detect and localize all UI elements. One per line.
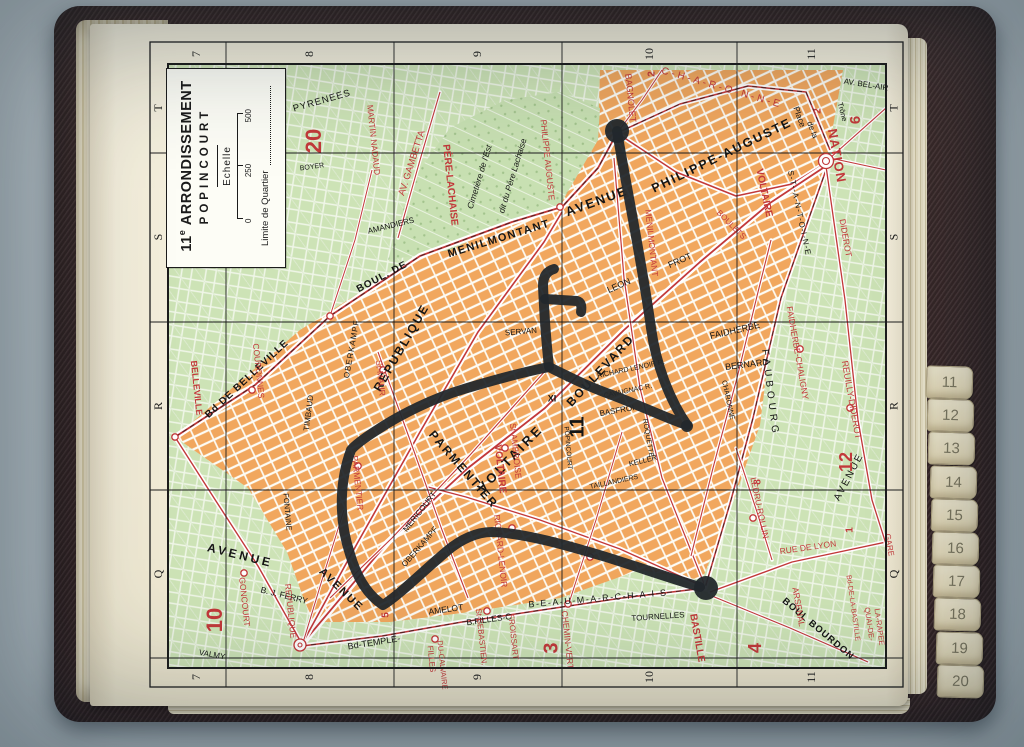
map-label: 6 [847, 116, 864, 124]
dotted-leader [262, 86, 271, 165]
grid-label-R: R [151, 402, 165, 410]
grid-label-11: 11 [804, 48, 818, 60]
grid-label-Q: Q [151, 569, 165, 578]
grid-label-T: T [886, 104, 900, 112]
grid-label-S: S [151, 234, 165, 241]
map-label: 8 [753, 479, 764, 485]
metro-station-marker [890, 563, 896, 569]
grid-label-7: 7 [189, 674, 203, 680]
map-label: 2 [813, 108, 824, 114]
quarter-limit-legend: Limite de Quartier [260, 86, 271, 246]
route-endpoint-dot [605, 119, 629, 143]
map-label: 5 [381, 612, 392, 618]
grid-label-R: R [886, 402, 900, 410]
metro-station-marker [327, 313, 333, 319]
map-label: 4 [745, 643, 765, 653]
map-label: 1 [845, 527, 856, 533]
grid-label-8: 8 [302, 51, 316, 57]
metro-station-marker [750, 515, 756, 521]
map-label: 20 [301, 129, 326, 153]
grid-label-10: 10 [642, 671, 656, 683]
scale-tick-values: 0 250 500 [244, 109, 253, 223]
route-endpoint-dot [681, 420, 693, 432]
metro-station-marker [294, 639, 306, 651]
grid-label-Q: Q [886, 569, 900, 578]
grid-label-9: 9 [470, 674, 484, 680]
grid-label-8: 8 [302, 674, 316, 680]
map-label: 10 [202, 608, 227, 632]
map-title-card: 11e ARRONDISSEMENT POPINCOURT Echelle 0 … [166, 68, 286, 268]
map-label: 12 [836, 452, 856, 472]
metro-station-marker [172, 434, 178, 440]
scale-bar [237, 113, 243, 219]
photo-background: AVENUEPHILIPPE-AUGUSTEBOULEVARDVOLTAIRER… [0, 0, 1024, 747]
street-map: AVENUEPHILIPPE-AUGUSTEBOULEVARDVOLTAIRER… [0, 0, 1024, 747]
scale-label: Echelle [222, 146, 233, 186]
grid-label-10: 10 [642, 48, 656, 60]
map-label: XI [548, 393, 557, 403]
title-divider [217, 145, 218, 187]
grid-label-11: 11 [804, 671, 818, 683]
metro-station-marker [249, 387, 255, 393]
map-label: 3 [540, 642, 562, 653]
metro-station-marker [557, 204, 563, 210]
grid-label-T: T [151, 104, 165, 112]
map-label: 2 [647, 71, 658, 77]
quarter-name: POPINCOURT [199, 108, 211, 225]
grid-label-9: 9 [470, 51, 484, 57]
grid-label-7: 7 [189, 51, 203, 57]
metro-station-marker [241, 570, 247, 576]
route-endpoint-dot [694, 576, 718, 600]
grid-label-S: S [886, 234, 900, 241]
page-title: 11e ARRONDISSEMENT [177, 80, 195, 251]
